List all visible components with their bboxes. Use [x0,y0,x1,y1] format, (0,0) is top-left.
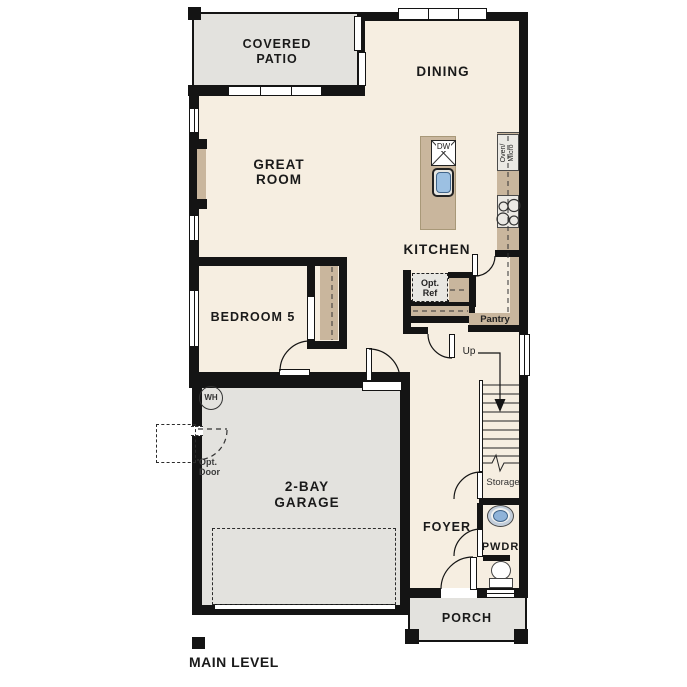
front-door-arc [441,557,473,589]
up-arrow-head [495,399,506,412]
bedroom-door-arc [280,341,310,371]
stair-treads [483,385,519,456]
dishwasher-label: DW [431,142,456,151]
pantry-door-arc [475,256,495,276]
pantry-label: Pantry [472,314,518,325]
opt-door-label: Opt.Door [199,457,220,477]
stair-break-line [483,455,519,471]
plan-title: MAIN LEVEL [189,654,279,670]
floor-plan: Opt. Ref [0,0,687,687]
water-heater-label: WH [204,393,217,403]
up-label: Up [460,346,478,357]
water-heater: WH [199,386,223,410]
oven-micro-label: Oven/Micro [497,134,519,171]
toilet-tank [489,578,513,588]
kitchen-hall-door-arc [428,334,452,358]
room-label-foyer: FOYER [417,520,477,535]
up-arrow-line [478,353,500,399]
room-label-garage: 2-BAYGARAGE [247,479,367,511]
room-label-porch: PORCH [427,611,507,626]
room-label-dining: DINING [403,64,483,79]
plan-linework [0,0,687,687]
room-label-great-room: GREATROOM [219,157,339,187]
opt-door-arc [197,430,227,460]
room-label-pwdr: PWDR [478,540,523,555]
room-label-covered-patio: COVEREDPATIO [217,37,337,67]
storage-door-arc [454,472,481,499]
garage-entry-door-arc [369,349,400,380]
storage-label: Storage [484,477,522,488]
room-label-bedroom5: BEDROOM 5 [196,310,310,325]
powder-sink-basin [493,510,508,522]
room-label-kitchen: KITCHEN [397,242,477,257]
